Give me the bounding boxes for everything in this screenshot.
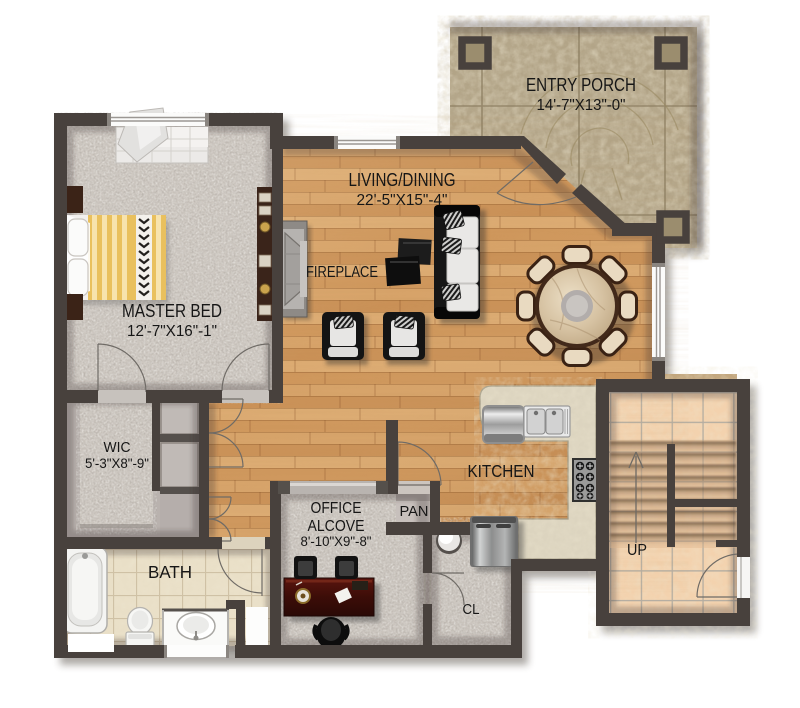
svg-text:FIREPLACE: FIREPLACE	[306, 264, 378, 281]
svg-text:MASTER BED: MASTER BED	[122, 301, 222, 321]
svg-text:OFFICE: OFFICE	[311, 500, 362, 517]
svg-text:CL: CL	[463, 602, 480, 618]
svg-text:14'-7"X13"-0": 14'-7"X13"-0"	[537, 97, 626, 114]
svg-text:KITCHEN: KITCHEN	[468, 461, 535, 481]
svg-text:5'-3"X8"-9": 5'-3"X8"-9"	[85, 456, 149, 471]
svg-text:BATH: BATH	[148, 562, 192, 582]
svg-text:LIVING/DINING: LIVING/DINING	[349, 170, 456, 190]
svg-text:ALCOVE: ALCOVE	[308, 518, 365, 535]
svg-text:WIC: WIC	[104, 439, 131, 456]
svg-text:22'-5"X15"-4": 22'-5"X15"-4"	[357, 192, 448, 209]
svg-text:8'-10"X9"-8": 8'-10"X9"-8"	[301, 534, 372, 549]
svg-text:ENTRY PORCH: ENTRY PORCH	[526, 75, 636, 95]
svg-text:12'-7"X16"-1": 12'-7"X16"-1"	[127, 323, 217, 340]
svg-text:PAN: PAN	[400, 504, 429, 520]
svg-text:UP: UP	[627, 542, 647, 559]
